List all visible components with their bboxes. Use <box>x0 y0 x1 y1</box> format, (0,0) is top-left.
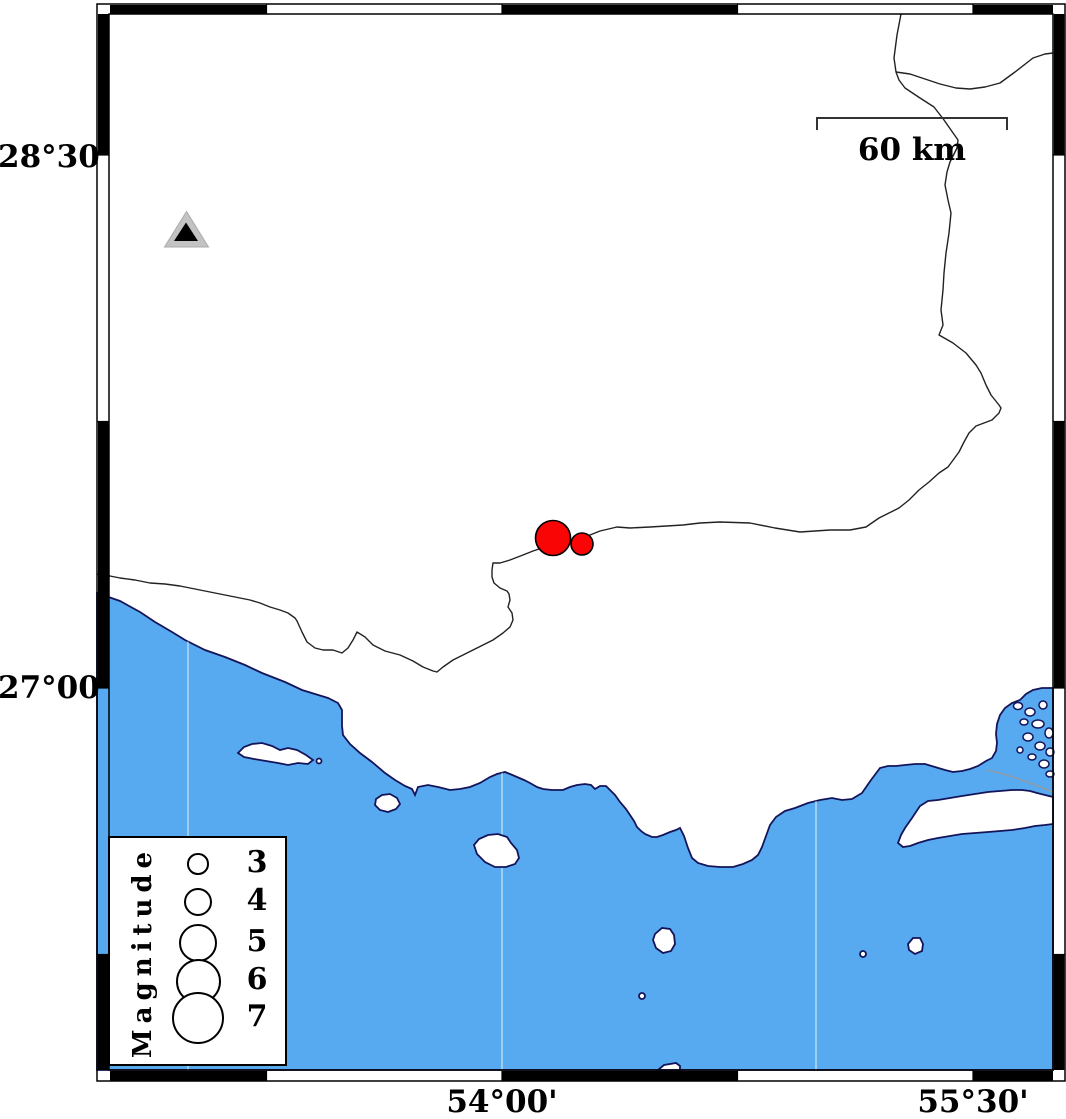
legend-title: Magnitude <box>128 846 158 1058</box>
islet <box>317 759 322 764</box>
earthquake-epicenter <box>571 533 593 555</box>
island-south-blob <box>653 928 675 953</box>
lat-label-2830: 28°30' <box>0 140 88 174</box>
lon-label-5400: 54°00' <box>422 1085 582 1119</box>
legend-magnitude-circle <box>179 924 217 962</box>
island-small-round <box>375 794 400 812</box>
legend-magnitude-value: 3 <box>235 846 279 880</box>
islet <box>639 993 645 999</box>
legend-magnitude-value: 7 <box>235 1000 279 1034</box>
island-east-blob <box>908 938 923 954</box>
lon-label-5530: 55°30' <box>893 1085 1053 1119</box>
legend-magnitude-value: 6 <box>235 963 279 997</box>
scale-bar-label: 60 km <box>812 134 1012 166</box>
legend-magnitude-value: 5 <box>235 925 279 959</box>
earthquake-epicenter <box>536 521 571 556</box>
earthquake-map-page: 28°30' 27°00' 54°00' 55°30' 60 km Magnit… <box>0 0 1066 1119</box>
legend-magnitude-value: 4 <box>235 884 279 918</box>
lat-label-2700: 27°00' <box>0 671 88 705</box>
legend-magnitude-circle <box>187 853 209 875</box>
islet <box>860 951 866 957</box>
